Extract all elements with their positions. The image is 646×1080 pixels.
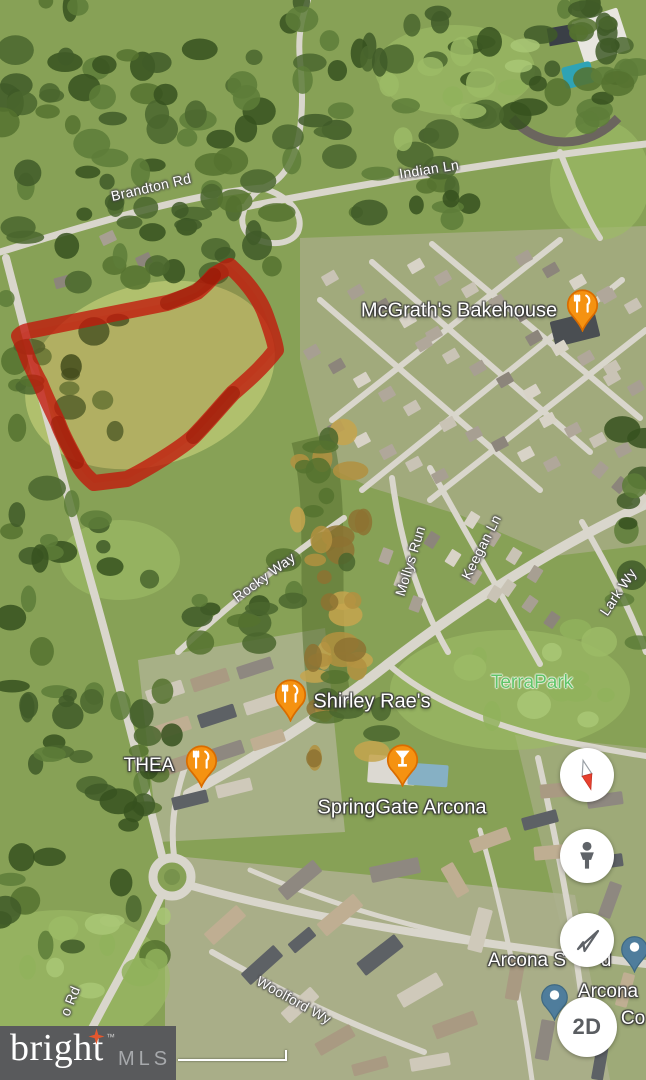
- bar-pin-springgate[interactable]: [386, 742, 419, 787]
- poi-label-springgate-arcona[interactable]: SpringGate Arcona: [318, 797, 487, 820]
- mls-logo-text: MLS: [118, 1048, 171, 1071]
- map-scale-bar: [178, 1050, 287, 1061]
- my-location-icon: [571, 924, 603, 956]
- trademark-symbol: ™: [106, 1032, 115, 1042]
- pegman-icon: [572, 840, 602, 872]
- my-location-button[interactable]: [560, 913, 614, 967]
- poi-label-terrapark[interactable]: TerraPark: [491, 672, 573, 694]
- restaurant-pin-mcgraths[interactable]: [566, 287, 599, 332]
- view-2d-button[interactable]: 2D: [557, 997, 617, 1057]
- place-dot-icon: [550, 990, 559, 999]
- map-view[interactable]: Brandton Rd Indian Ln Rocky Way Mollys R…: [0, 0, 646, 1080]
- satellite-imagery[interactable]: [0, 0, 646, 1080]
- bright-mls-watermark: bright ™ MLS: [0, 1026, 176, 1080]
- restaurant-pin-thea[interactable]: [185, 743, 218, 788]
- poi-label-thea[interactable]: THEA: [124, 755, 175, 777]
- poi-label-arcona-partial-left[interactable]: Arcona S: [488, 950, 566, 972]
- compass-button[interactable]: [560, 748, 614, 802]
- compass-needle-icon: [570, 756, 604, 794]
- poi-label-arcona-2-line2[interactable]: Co: [621, 1008, 645, 1030]
- poi-label-mcgraths-bakehouse[interactable]: McGrath's Bakehouse: [361, 300, 557, 323]
- view-2d-label: 2D: [572, 1014, 601, 1040]
- place-dot-icon: [630, 942, 639, 951]
- pegman-button[interactable]: [560, 829, 614, 883]
- star-icon: [88, 1028, 105, 1045]
- poi-label-shirley-raes[interactable]: Shirley Rae's: [313, 691, 430, 714]
- place-pin-blue-1[interactable]: [620, 934, 646, 973]
- restaurant-pin-shirley-raes[interactable]: [274, 677, 307, 722]
